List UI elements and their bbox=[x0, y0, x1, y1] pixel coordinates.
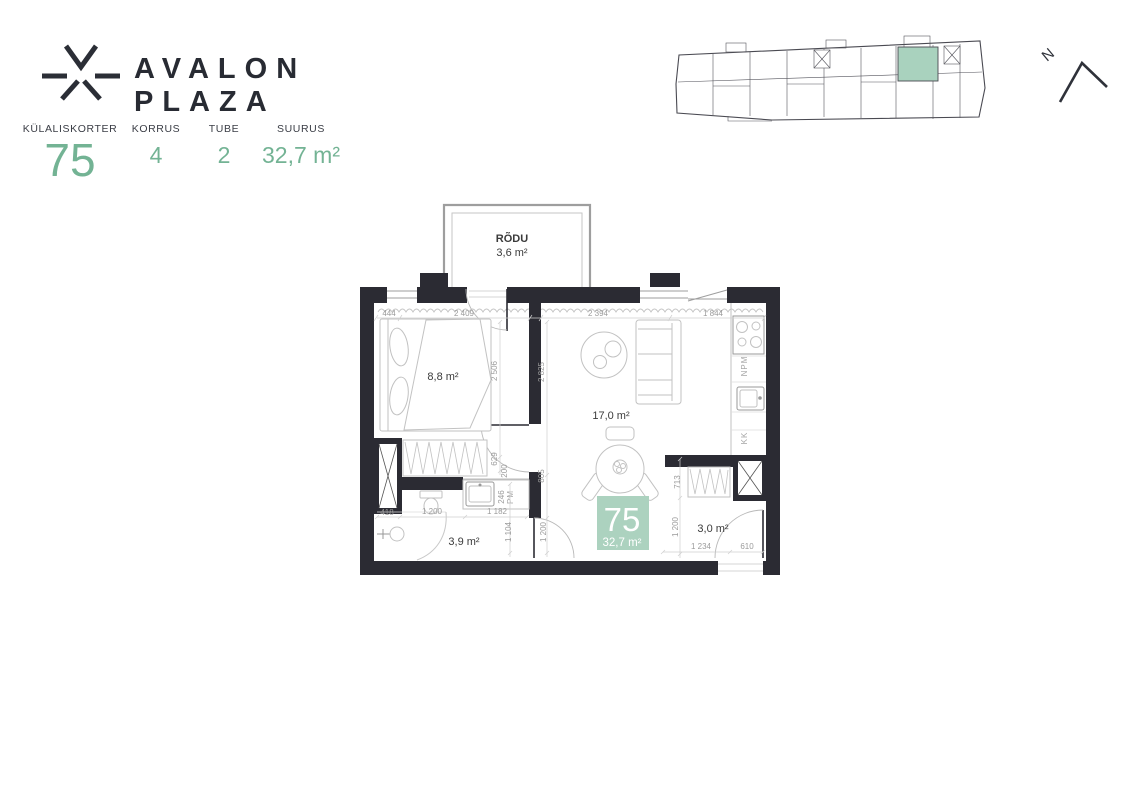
building-overview-map bbox=[668, 34, 990, 126]
bathroom-area-label: 3,9 m² bbox=[448, 536, 480, 548]
balcony-name: RÕDU bbox=[496, 232, 528, 245]
stat-size: SUURUS 32,7 m² bbox=[258, 123, 344, 169]
dim-label: 246 bbox=[497, 490, 506, 504]
stat-size-value: 32,7 m² bbox=[258, 142, 344, 169]
living-tilt-window bbox=[688, 287, 727, 303]
dim-label: 1 844 bbox=[703, 309, 724, 318]
stat-rooms-label: TUBE bbox=[203, 123, 245, 135]
hall-area-label: 3,0 m² bbox=[697, 523, 729, 535]
building-overview-highlighted-unit bbox=[898, 47, 938, 81]
dim-label: 444 bbox=[382, 309, 396, 318]
stat-apartment: KÜLALISKORTER 75 bbox=[20, 123, 120, 182]
dishwasher-label: NPM bbox=[740, 356, 749, 377]
north-arrow-chevron bbox=[1060, 63, 1107, 102]
sofa bbox=[636, 320, 681, 404]
bedroom-wardrobe bbox=[403, 440, 487, 476]
dim-label: 629 bbox=[490, 452, 499, 466]
facade-pier bbox=[420, 273, 448, 287]
fridge-label: KK bbox=[740, 432, 749, 445]
dim-label: 1 200 bbox=[671, 516, 680, 537]
stove bbox=[733, 316, 764, 354]
dim-label: 1 234 bbox=[691, 542, 712, 551]
living-area-label: 17,0 m² bbox=[592, 410, 630, 422]
balcony-area: 3,6 m² bbox=[496, 247, 528, 259]
shower-screen bbox=[417, 512, 446, 560]
balcony: RÕDU 3,6 m² bbox=[444, 205, 590, 301]
stat-rooms: TUBE 2 bbox=[203, 123, 245, 169]
dim-label: 610 bbox=[740, 542, 754, 551]
stat-rooms-value: 2 bbox=[203, 142, 245, 169]
brand-wordmark: AVALON PLAZA bbox=[134, 53, 454, 119]
dining-table bbox=[580, 427, 660, 502]
shower bbox=[377, 512, 446, 560]
dim-label: 2 394 bbox=[588, 309, 609, 318]
facade-pier bbox=[650, 273, 680, 287]
duct-shaft-hall bbox=[733, 455, 767, 501]
bedroom-window bbox=[387, 287, 417, 303]
unit-badge-area: 32,7 m² bbox=[603, 537, 642, 549]
shower-head-icon bbox=[377, 529, 390, 539]
dim-label: 713 bbox=[673, 475, 682, 489]
north-label: N bbox=[1039, 45, 1058, 65]
dim-label: 2 825 bbox=[537, 361, 546, 382]
stat-size-label: SUURUS bbox=[258, 123, 344, 135]
dining-chair bbox=[606, 427, 634, 440]
dim-label: 418 bbox=[380, 508, 394, 517]
floor-plan: RÕDU 3,6 m² bbox=[355, 190, 785, 580]
dim-label: 1 182 bbox=[487, 507, 508, 516]
armchair bbox=[581, 332, 627, 378]
bathroom-sink bbox=[466, 482, 494, 506]
washing-machine-label: PM bbox=[506, 490, 515, 504]
unit-badge: 75 32,7 m² bbox=[597, 496, 649, 550]
header-logo-icon bbox=[30, 30, 140, 115]
stat-floor-value: 4 bbox=[130, 142, 182, 169]
hall-wardrobe bbox=[688, 467, 730, 497]
north-arrow: N bbox=[1025, 35, 1120, 115]
kitchen-sink bbox=[737, 387, 764, 410]
living-window bbox=[640, 287, 688, 303]
dim-label: 2 506 bbox=[490, 360, 499, 381]
dim-label: 1 200 bbox=[539, 521, 548, 542]
dim-label: 1 104 bbox=[504, 521, 513, 542]
stat-floor: KORRUS 4 bbox=[130, 123, 182, 169]
stat-apartment-value: 75 bbox=[20, 138, 120, 182]
stat-floor-label: KORRUS bbox=[130, 123, 182, 135]
floor-plan-page: AVALON PLAZA KÜLALISKORTER 75 KORRUS 4 T… bbox=[0, 0, 1131, 800]
duct-shaft-left bbox=[374, 438, 402, 514]
dim-label: 200 bbox=[500, 464, 509, 478]
dim-label: 1 200 bbox=[422, 507, 443, 516]
bedroom-area-label: 8,8 m² bbox=[427, 371, 459, 383]
dim-label: 2 409 bbox=[454, 309, 475, 318]
entrance-door bbox=[715, 510, 763, 575]
kitchen-counter: NPM KK bbox=[731, 303, 766, 455]
unit-badge-number: 75 bbox=[604, 501, 641, 538]
dim-label: 805 bbox=[537, 469, 546, 483]
